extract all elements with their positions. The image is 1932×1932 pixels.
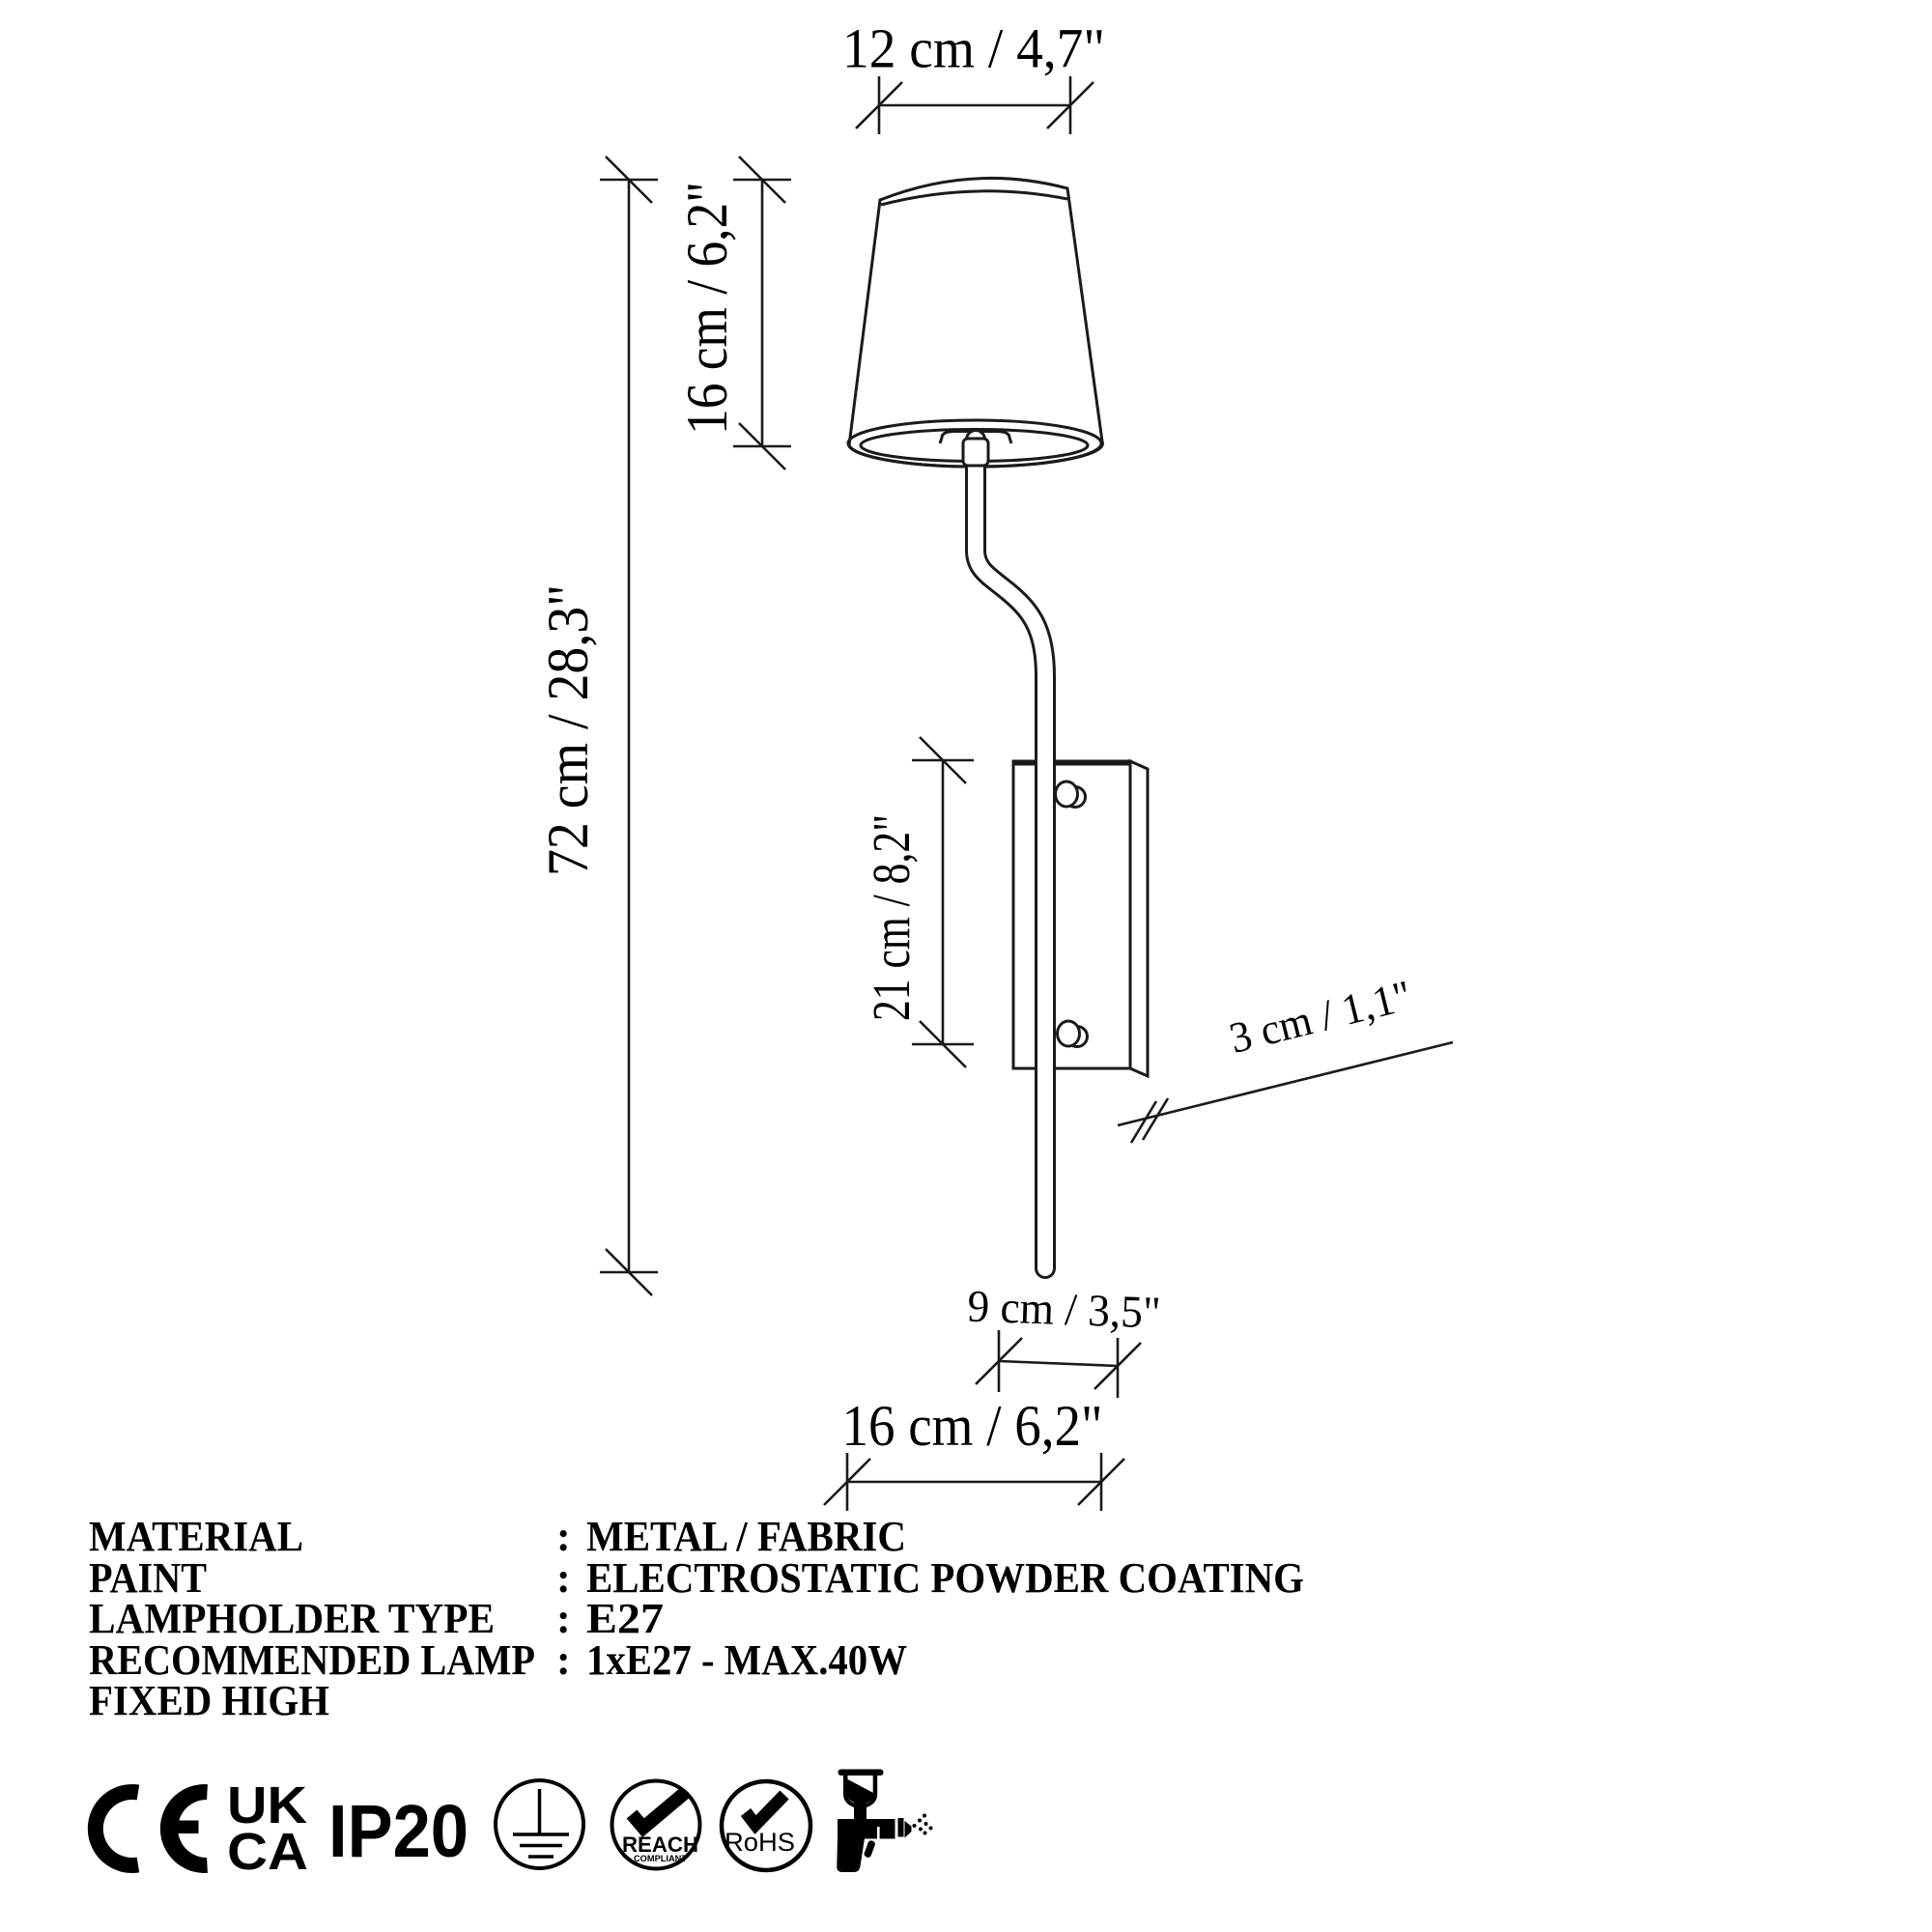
svg-text:CA: CA	[227, 1823, 308, 1881]
svg-text:72 cm / 28,3": 72 cm / 28,3"	[536, 584, 600, 876]
svg-text:METAL / FABRIC: METAL / FABRIC	[586, 1513, 906, 1560]
svg-text:12 cm / 4,7": 12 cm / 4,7"	[842, 17, 1105, 80]
svg-text::: :	[556, 1513, 571, 1560]
svg-text:16 cm / 6,2": 16 cm / 6,2"	[675, 182, 739, 435]
svg-text:FIXED HIGH: FIXED HIGH	[89, 1677, 329, 1724]
svg-text:ELECTROSTATIC POWDER COATING: ELECTROSTATIC POWDER COATING	[586, 1554, 1304, 1602]
svg-text::: :	[556, 1595, 571, 1642]
svg-text:16 cm / 6,2": 16 cm / 6,2"	[842, 1394, 1103, 1458]
svg-text:1xE27 - MAX.40W: 1xE27 - MAX.40W	[586, 1636, 907, 1684]
svg-text:MATERIAL: MATERIAL	[89, 1513, 303, 1560]
svg-text::: :	[556, 1636, 571, 1684]
svg-text:IP20: IP20	[328, 1790, 469, 1873]
svg-text:21 cm / 8,2": 21 cm / 8,2"	[862, 814, 921, 1021]
svg-text:9 cm / 3,5": 9 cm / 3,5"	[967, 1282, 1162, 1339]
svg-text:E27: E27	[586, 1595, 664, 1642]
svg-text:RoHS: RoHS	[724, 1828, 795, 1857]
svg-text:LAMPHOLDER TYPE: LAMPHOLDER TYPE	[89, 1595, 495, 1642]
svg-text:COMPLIANT: COMPLIANT	[634, 1854, 688, 1863]
